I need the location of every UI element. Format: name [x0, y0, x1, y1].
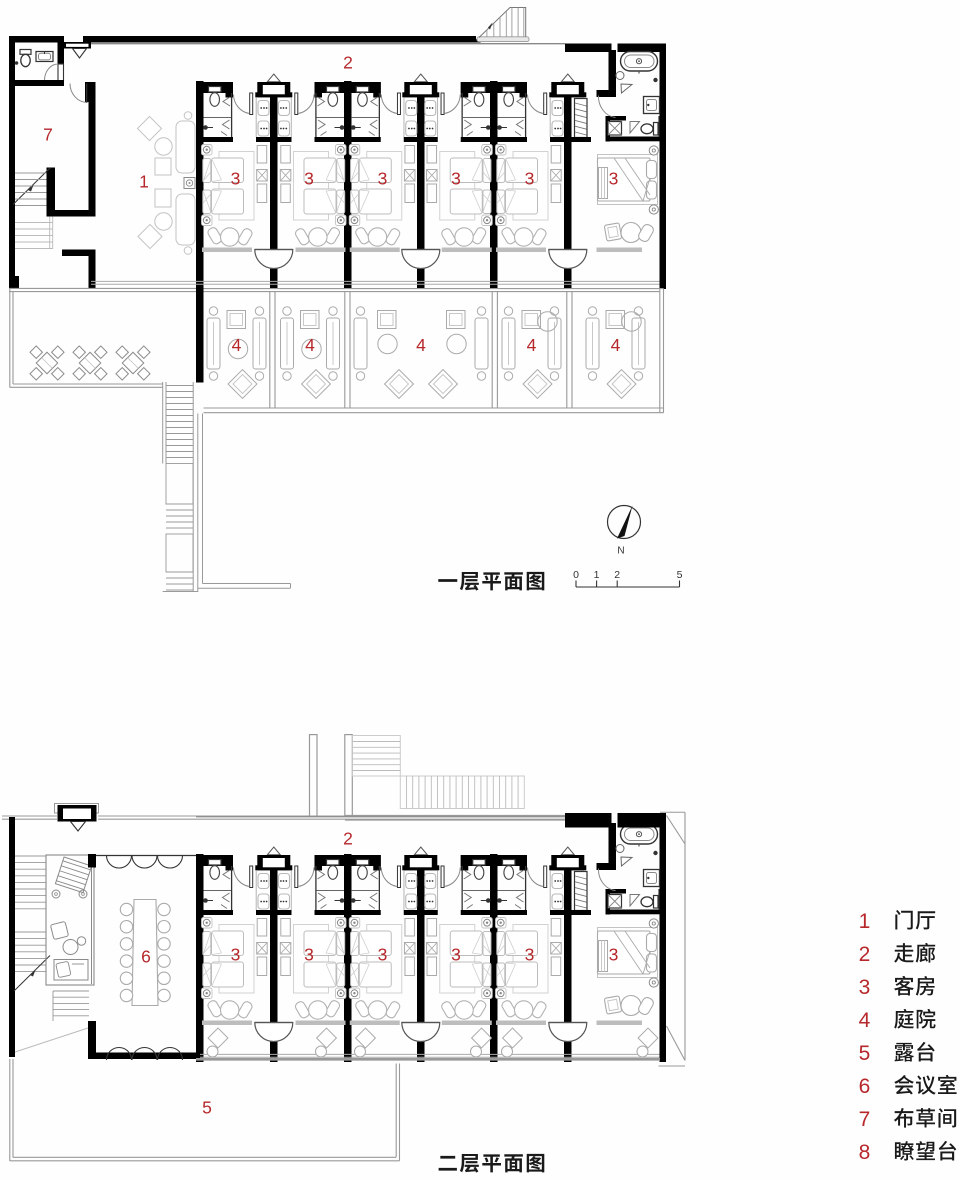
svg-text:3: 3	[304, 169, 314, 189]
svg-text:4: 4	[232, 335, 242, 355]
svg-text:3: 3	[609, 169, 619, 189]
svg-text:5: 5	[859, 1042, 871, 1065]
svg-text:5: 5	[677, 569, 683, 581]
svg-text:3: 3	[231, 169, 241, 189]
svg-text:2: 2	[614, 569, 620, 581]
svg-text:3: 3	[525, 945, 535, 965]
svg-text:0: 0	[573, 569, 579, 581]
svg-text:2: 2	[343, 53, 353, 73]
svg-text:3: 3	[609, 945, 619, 965]
svg-text:1: 1	[139, 172, 149, 192]
svg-text:3: 3	[859, 976, 871, 999]
svg-text:4: 4	[859, 1009, 871, 1032]
svg-text:3: 3	[378, 945, 388, 965]
svg-text:N: N	[617, 546, 624, 557]
svg-text:7: 7	[43, 125, 53, 145]
svg-text:6: 6	[859, 1075, 871, 1098]
svg-text:8: 8	[859, 1141, 871, 1164]
svg-text:3: 3	[451, 945, 461, 965]
svg-text:2: 2	[343, 829, 353, 849]
svg-text:1: 1	[594, 569, 600, 581]
svg-text:2: 2	[859, 943, 871, 966]
svg-text:5: 5	[202, 1098, 212, 1118]
svg-text:3: 3	[304, 945, 314, 965]
svg-text:4: 4	[416, 335, 426, 355]
svg-text:3: 3	[378, 169, 388, 189]
svg-text:3: 3	[231, 945, 241, 965]
svg-text:6: 6	[141, 947, 151, 967]
svg-text:7: 7	[859, 1108, 871, 1131]
svg-text:4: 4	[305, 335, 315, 355]
svg-text:4: 4	[527, 335, 537, 355]
svg-text:4: 4	[611, 335, 621, 355]
svg-text:3: 3	[525, 169, 535, 189]
svg-text:1: 1	[859, 910, 871, 933]
svg-text:3: 3	[451, 169, 461, 189]
